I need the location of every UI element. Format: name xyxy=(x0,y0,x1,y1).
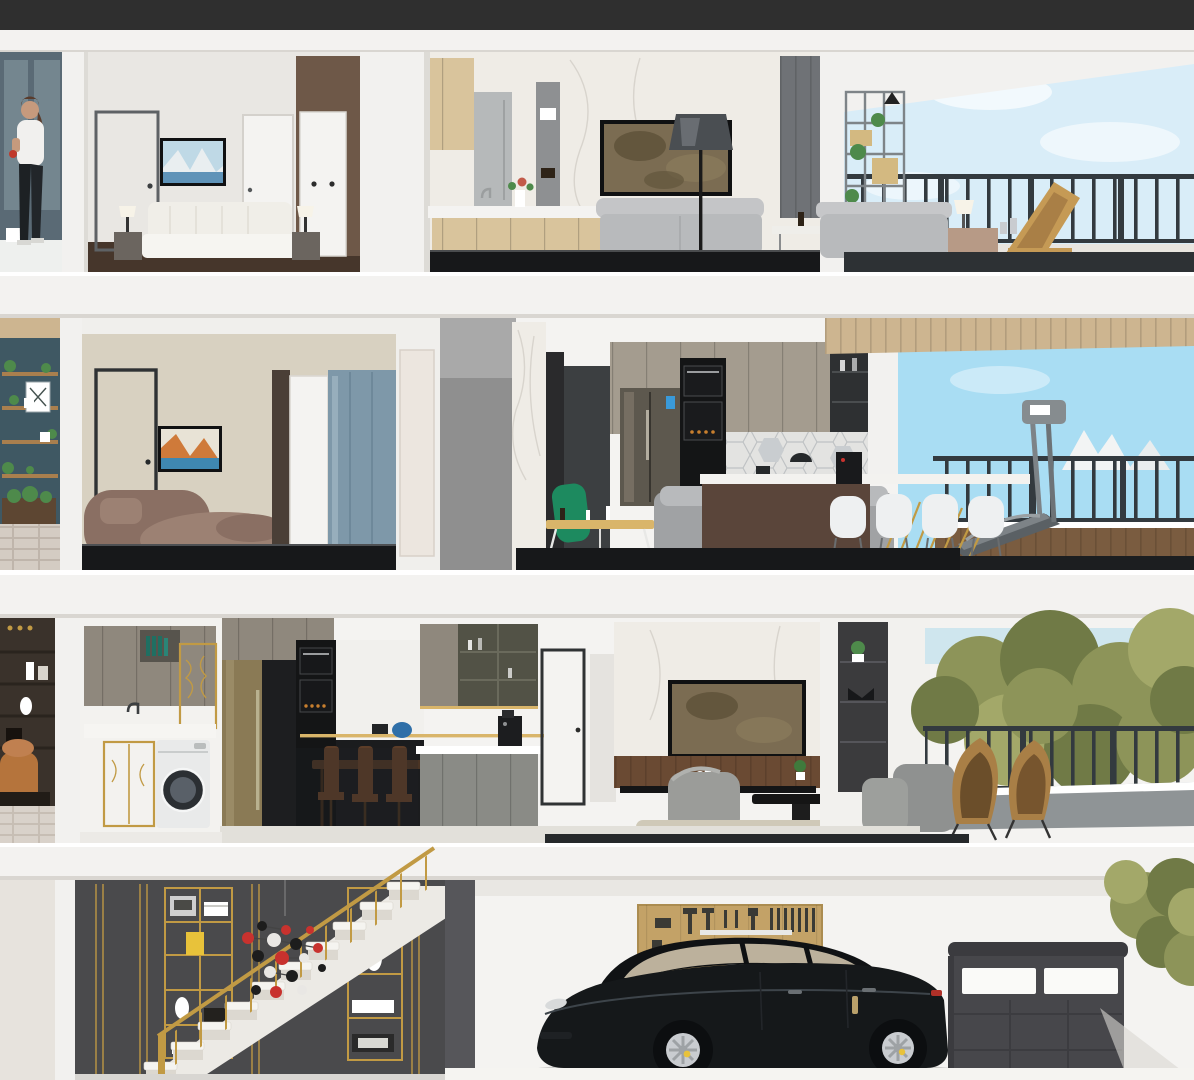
laundry-counter xyxy=(84,724,216,738)
counter-top xyxy=(700,474,1030,484)
washing-machine xyxy=(156,740,210,828)
floor-third xyxy=(0,608,1194,843)
top-balcony xyxy=(816,52,1194,272)
screenshot-stage xyxy=(0,0,1194,1080)
structural-column-wide xyxy=(360,52,430,272)
top-bedroom xyxy=(88,52,360,272)
white-closet xyxy=(290,376,328,554)
garage-door-window xyxy=(962,968,1036,994)
olive-glass-cabinet xyxy=(458,624,538,708)
taillight xyxy=(931,990,942,996)
gloss-black-floor xyxy=(82,544,402,570)
brass-fridge xyxy=(222,660,296,832)
display-cabinet xyxy=(838,622,888,792)
garage-side-wall xyxy=(445,880,475,1080)
structural-column xyxy=(55,880,75,1080)
balcony-sofa xyxy=(816,202,952,258)
balcony-tile-floor xyxy=(844,252,1194,272)
marble-pillar xyxy=(512,322,546,570)
driveway-floor xyxy=(445,1068,1194,1080)
double-bed xyxy=(142,202,298,258)
gray-sofa xyxy=(596,198,764,254)
dark-door-slab xyxy=(272,370,290,552)
garage-door xyxy=(948,942,1128,1080)
cream-door xyxy=(400,350,434,556)
floor-second xyxy=(0,318,1194,570)
second-lounge-room xyxy=(82,318,402,570)
wall-tv-canyon xyxy=(158,426,222,472)
floor-ground xyxy=(0,848,1194,1080)
balcony-pillar xyxy=(868,336,898,478)
white-backsplash xyxy=(336,640,424,738)
structural-column xyxy=(60,318,82,570)
blue-cabinet xyxy=(328,370,396,560)
blue-kettle xyxy=(392,722,412,738)
house-cross-section-render xyxy=(0,0,1194,1080)
hallway-and-pillar xyxy=(396,318,564,570)
bedroom-wall-tv xyxy=(160,138,226,186)
coffee-machine xyxy=(836,452,862,484)
yellow-book xyxy=(186,932,204,955)
floor-top xyxy=(0,52,1194,272)
side-vent xyxy=(852,996,858,1014)
glass-partition xyxy=(296,748,418,838)
kitchen-floor xyxy=(516,548,960,570)
wall-shelf-column xyxy=(536,82,560,216)
structural-column xyxy=(55,618,80,843)
floor-front-edge xyxy=(545,834,969,843)
living-room-tv xyxy=(668,680,806,758)
laundry-room xyxy=(80,618,222,843)
tall-fridge-panel xyxy=(474,92,512,214)
left-exterior-wall xyxy=(0,880,55,1080)
black-marble-floor xyxy=(430,250,830,272)
left-exterior-study xyxy=(0,618,55,843)
stair-hall xyxy=(75,848,446,1080)
garage-door-window xyxy=(1044,968,1118,994)
